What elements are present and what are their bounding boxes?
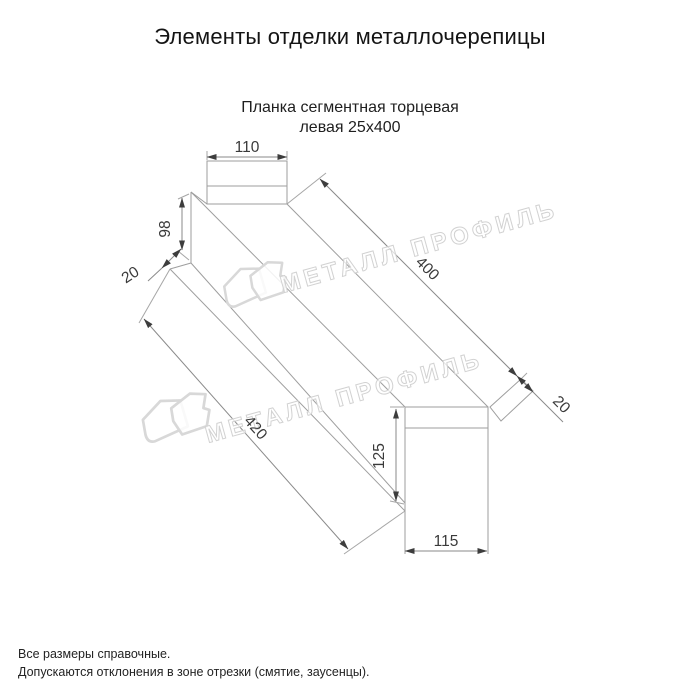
- dim-line-20-right: [517, 376, 533, 392]
- footnotes: Все размеры справочные. Допускаются откл…: [18, 645, 370, 681]
- footnote-line1: Все размеры справочные.: [18, 645, 370, 663]
- metall-profil-logo-icon: [220, 259, 290, 308]
- dim-label-side-height: 98: [157, 220, 174, 237]
- watermark-text: МЕТАЛЛ ПРОФИЛЬ: [277, 196, 560, 299]
- dim-label-right-fold: 20: [549, 393, 573, 417]
- end-face-right: [405, 407, 488, 554]
- footnote-line2: Допускаются отклонения в зоне отрезки (с…: [18, 663, 370, 681]
- dim-label-left-fold: 20: [119, 263, 143, 287]
- dimension-labels: 110 98 20 400 20 420 125 115: [119, 139, 574, 550]
- technical-drawing: МЕТАЛЛ ПРОФИЛЬ МЕТАЛЛ ПРОФИЛЬ 110 98 20 …: [0, 0, 700, 700]
- watermark-1: МЕТАЛЛ ПРОФИЛЬ: [220, 196, 561, 308]
- dim-label-end-height: 125: [371, 443, 388, 469]
- bottom-fold-left-edge: [170, 263, 191, 269]
- metall-profil-logo-icon: [138, 390, 213, 443]
- watermark-text: МЕТАЛЛ ПРОФИЛЬ: [202, 346, 485, 449]
- end-wall-left: [207, 161, 287, 204]
- dim-label-end-width: 115: [434, 533, 459, 550]
- watermark-2: МЕТАЛЛ ПРОФИЛЬ: [138, 346, 485, 449]
- dim-label-top-width: 110: [235, 139, 260, 156]
- dim-line-20-left: [162, 249, 181, 268]
